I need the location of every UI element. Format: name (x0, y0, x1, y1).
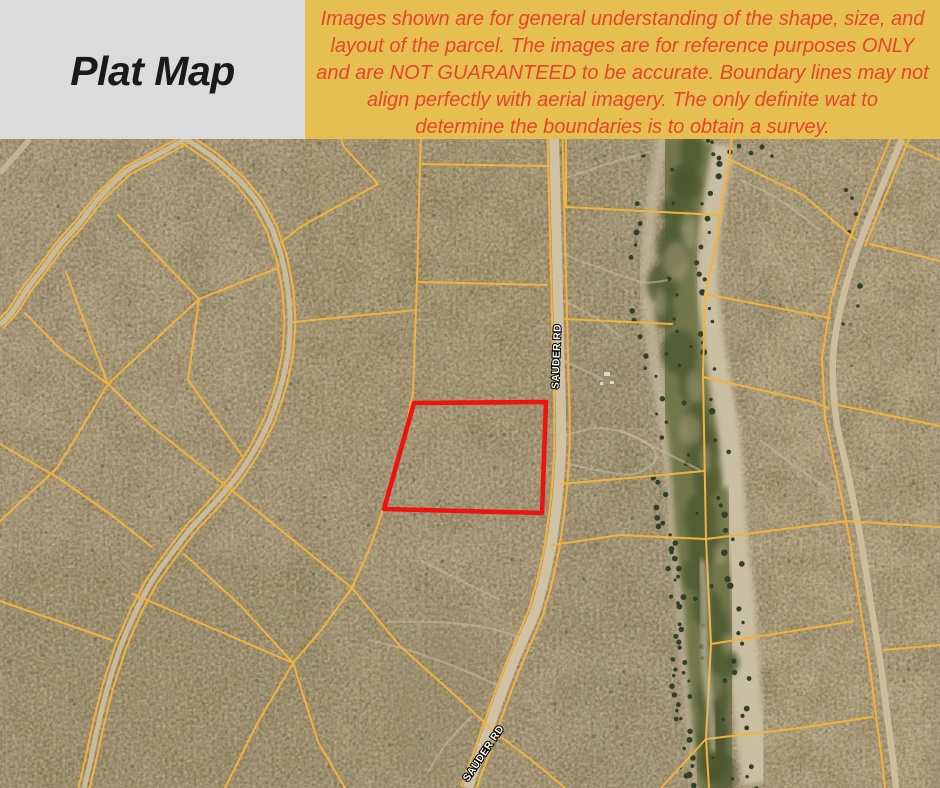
svg-text:SAUDER RD: SAUDER RD (551, 324, 564, 389)
